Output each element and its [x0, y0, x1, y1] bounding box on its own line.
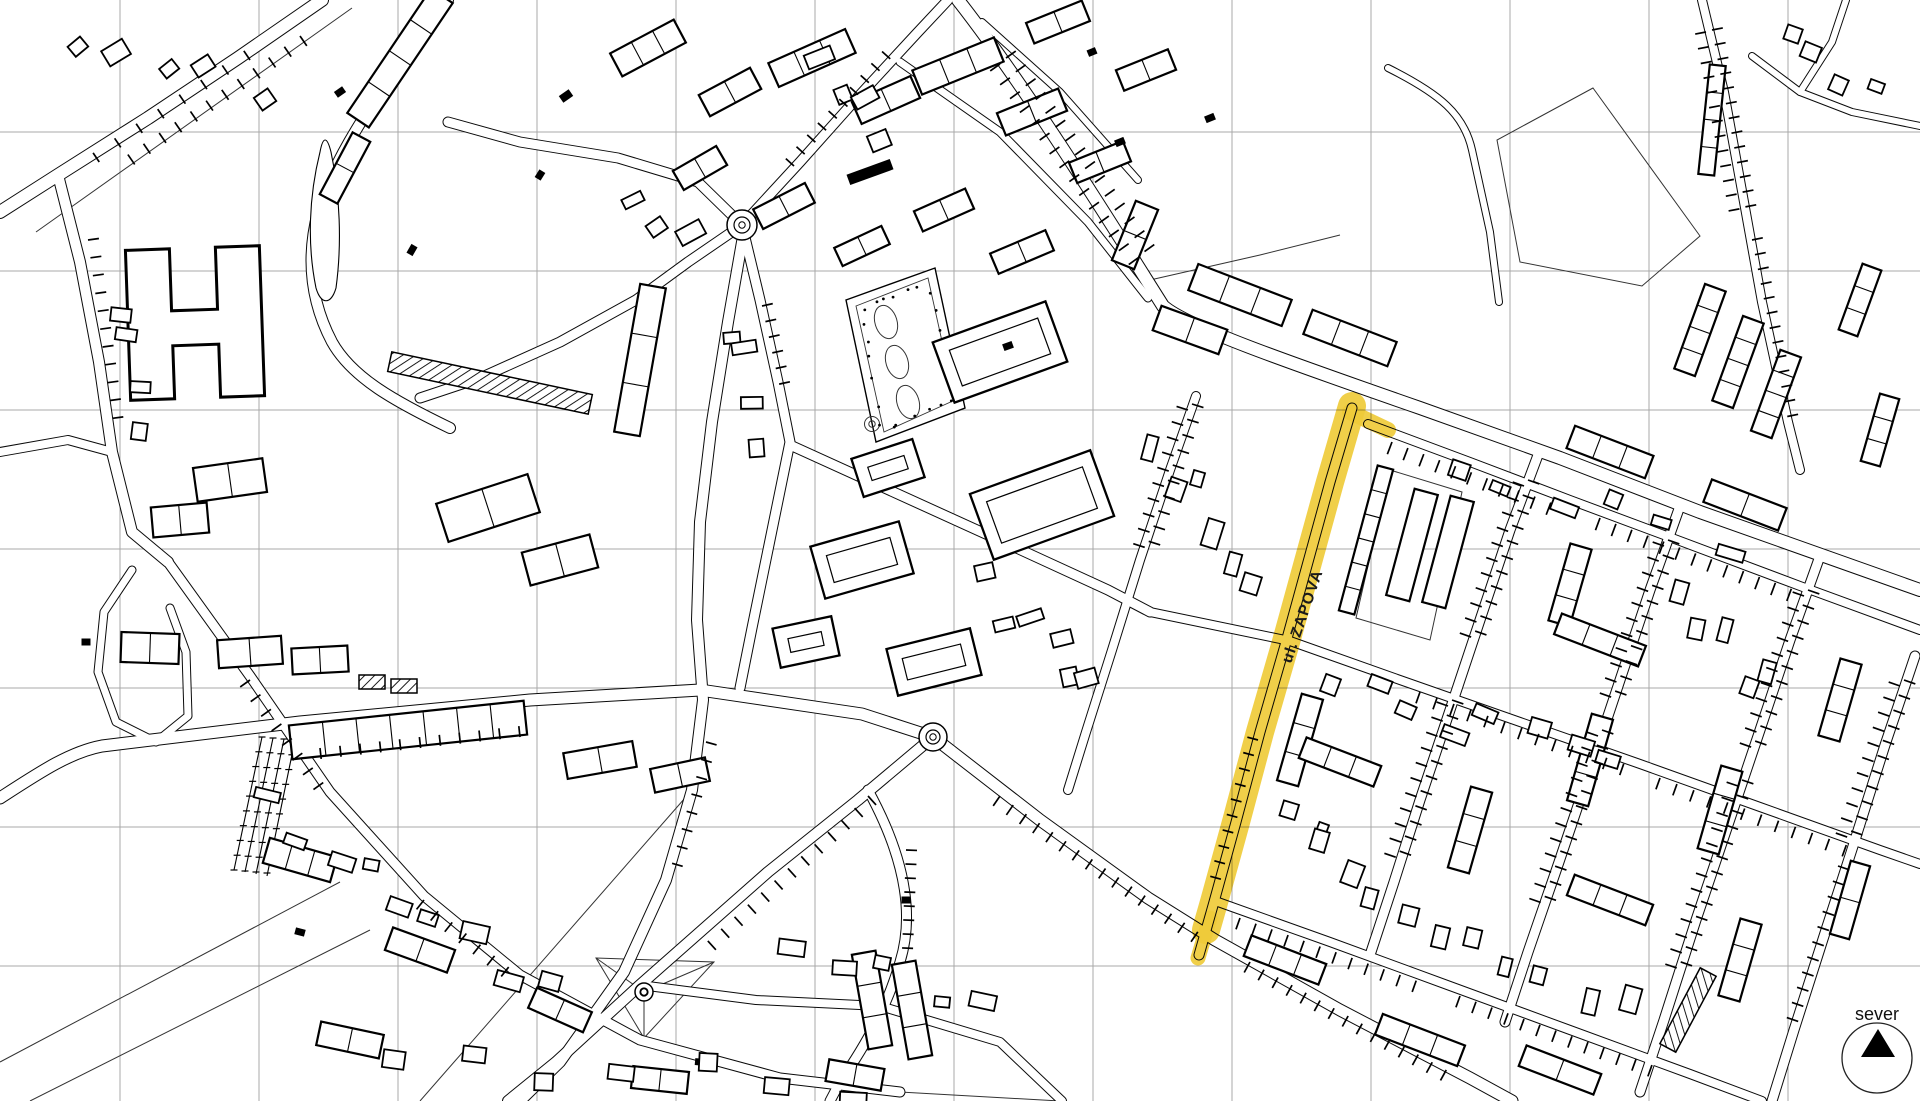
cadastral-map-canvas: ul. ZAPOVA sever	[0, 0, 1920, 1101]
road-casings	[0, 0, 1920, 1101]
city-plan-map: ul. ZAPOVA sever	[0, 0, 1920, 1101]
buildings	[68, 0, 1900, 1101]
highlight-band	[1206, 406, 1352, 930]
north-label: sever	[1855, 1004, 1899, 1024]
road-surfaces	[0, 0, 1920, 1101]
coordinate-grid	[0, 0, 1920, 1101]
compass: sever	[1842, 1004, 1912, 1093]
